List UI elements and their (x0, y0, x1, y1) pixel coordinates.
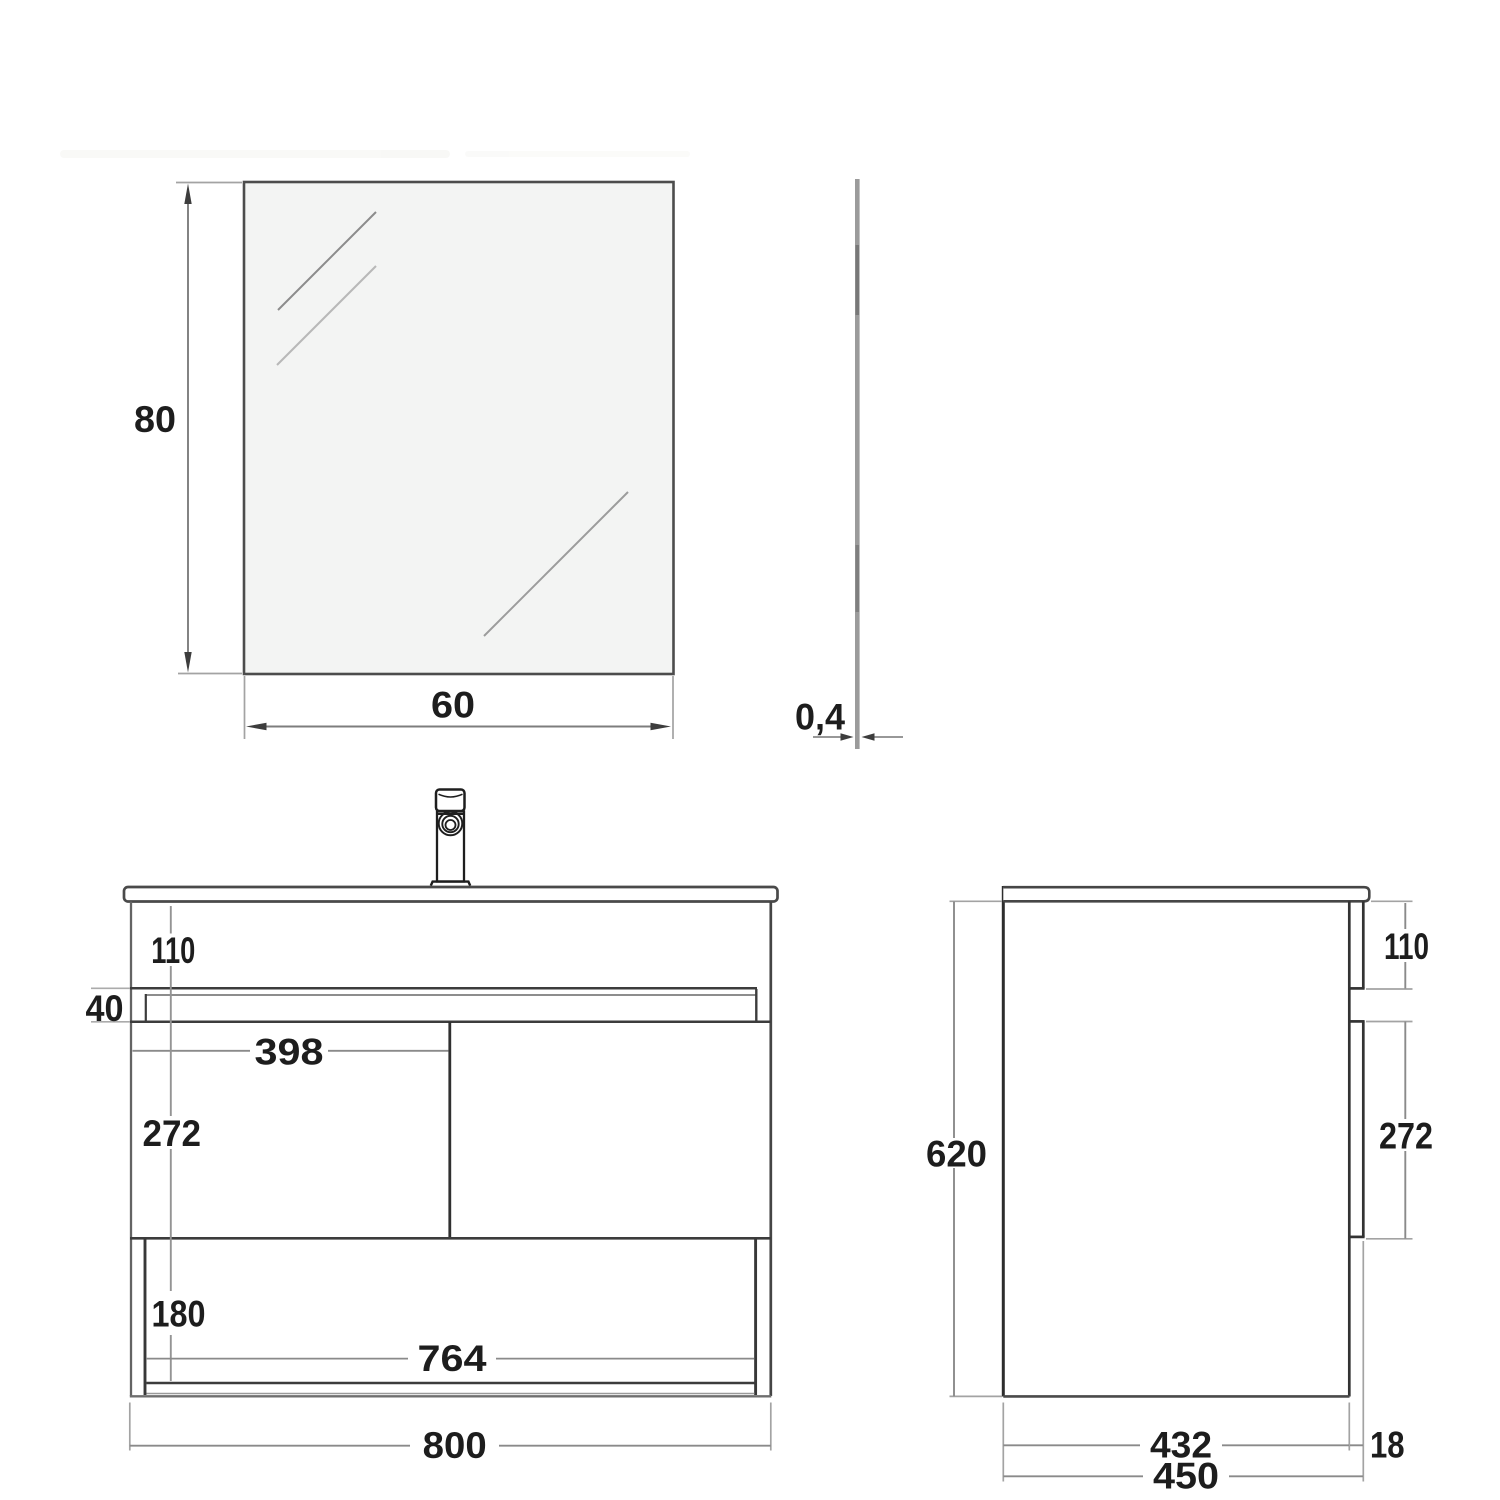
svg-text:764: 764 (418, 1338, 487, 1379)
svg-text:272: 272 (143, 1113, 202, 1154)
svg-text:0,4: 0,4 (795, 696, 845, 737)
svg-text:272: 272 (1379, 1115, 1433, 1156)
svg-text:40: 40 (86, 988, 124, 1029)
svg-text:398: 398 (255, 1031, 324, 1072)
svg-text:80: 80 (134, 399, 176, 440)
svg-text:180: 180 (152, 1294, 206, 1335)
svg-text:110: 110 (1384, 926, 1429, 967)
svg-text:450: 450 (1153, 1456, 1219, 1497)
svg-text:18: 18 (1370, 1425, 1405, 1466)
svg-text:800: 800 (423, 1425, 487, 1466)
svg-text:60: 60 (431, 684, 475, 725)
svg-text:110: 110 (151, 930, 195, 971)
svg-text:620: 620 (926, 1133, 987, 1174)
